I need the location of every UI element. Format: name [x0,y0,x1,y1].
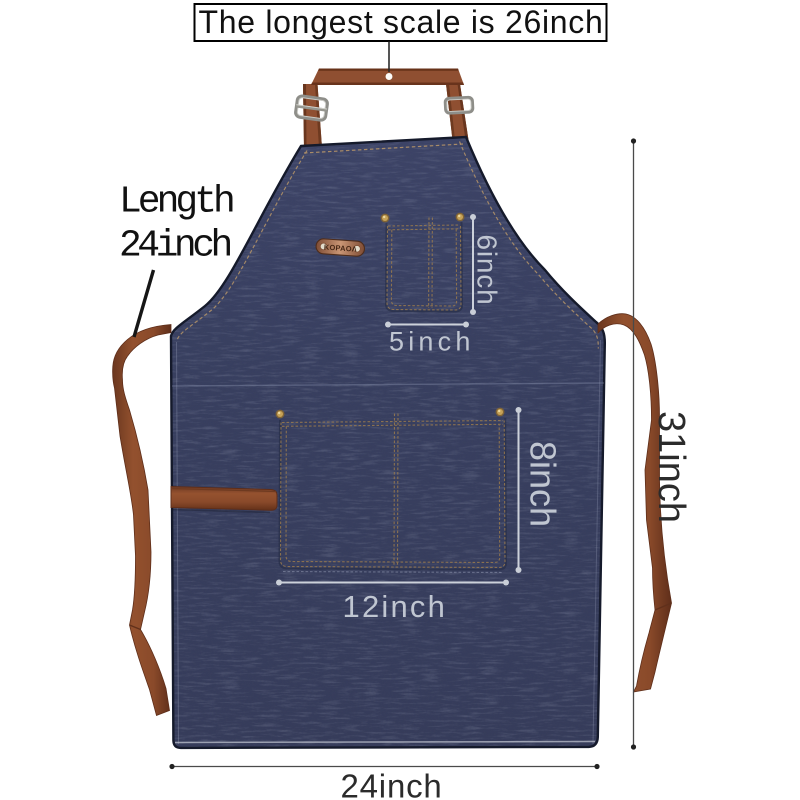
svg-text:8inch: 8inch [523,441,564,527]
svg-text:12inch: 12inch [343,589,448,624]
svg-text:31inch: 31inch [650,411,692,523]
svg-text:24inch: 24inch [119,225,231,268]
svg-text:Length: Length [119,181,233,224]
svg-text:The longest scale is 26inch: The longest scale is 26inch [199,4,604,40]
svg-text:6inch: 6inch [472,235,503,306]
svg-text:24inch: 24inch [341,768,443,800]
svg-text:5inch: 5inch [389,327,475,357]
